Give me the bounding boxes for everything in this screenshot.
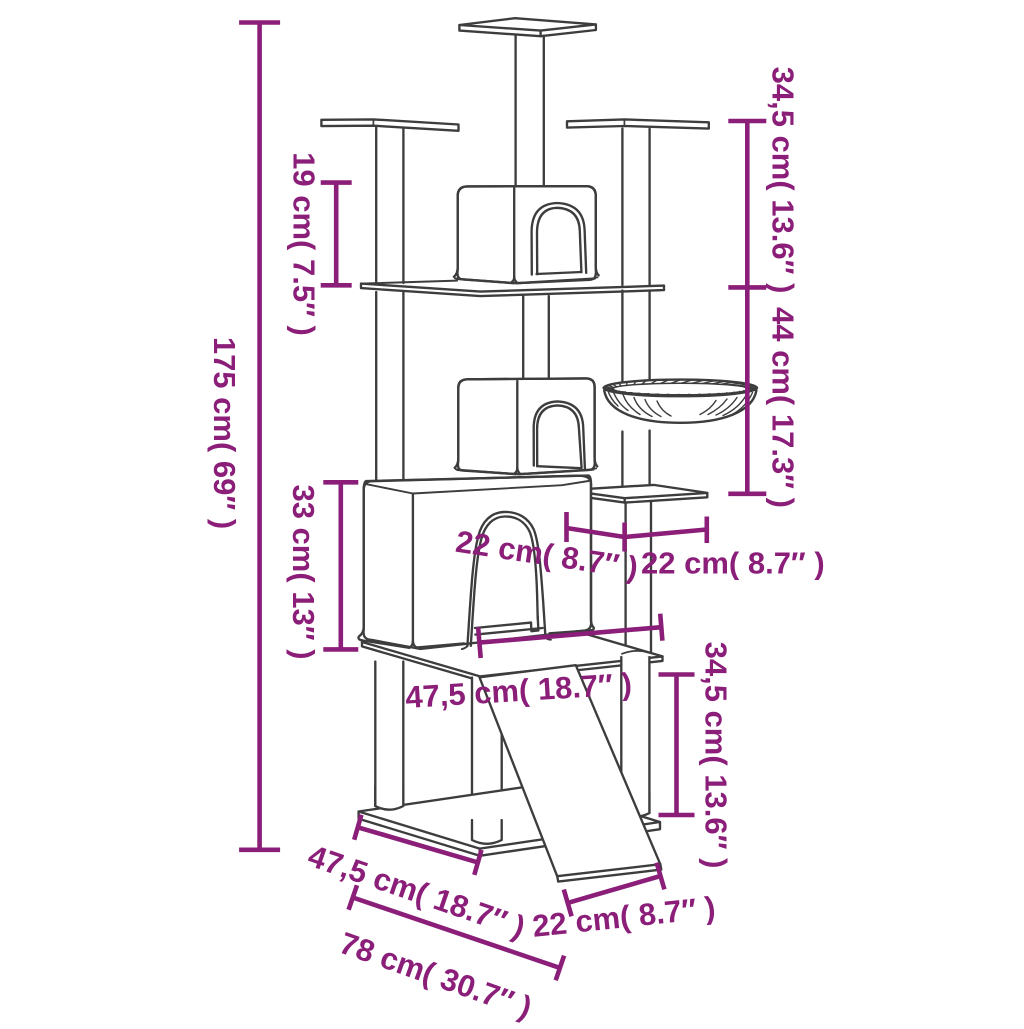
- svg-text:34,5 cm( 13.6″ ): 34,5 cm( 13.6″ ): [699, 642, 734, 869]
- svg-text:33 cm( 13″ ): 33 cm( 13″ ): [286, 484, 321, 659]
- svg-text:22 cm( 8.7″ ): 22 cm( 8.7″ ): [641, 546, 825, 581]
- svg-text:175 cm( 69″ ): 175 cm( 69″ ): [207, 337, 242, 529]
- svg-text:19 cm( 7.5″ ): 19 cm( 7.5″ ): [287, 152, 322, 336]
- svg-text:34,5 cm( 13.6″ ): 34,5 cm( 13.6″ ): [766, 67, 801, 294]
- svg-text:44 cm( 17.3″ ): 44 cm( 17.3″ ): [766, 307, 801, 508]
